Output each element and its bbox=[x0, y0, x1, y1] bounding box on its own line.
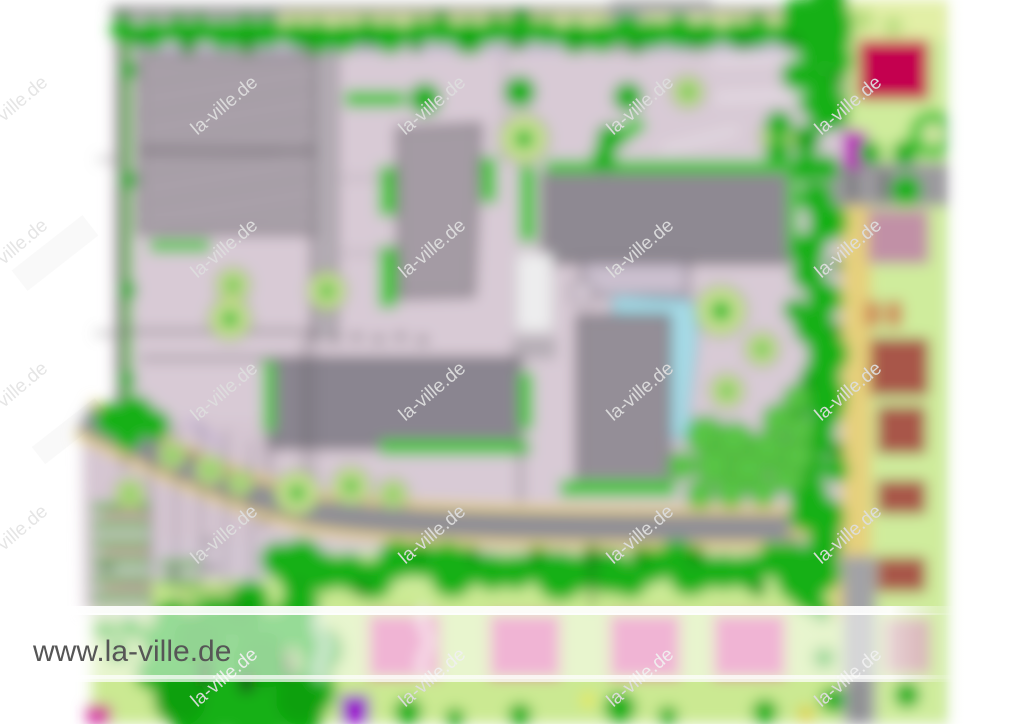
svg-text:www.la-ville.de: www.la-ville.de bbox=[32, 635, 231, 668]
svg-text:la-ville.de: la-ville.de bbox=[0, 72, 52, 140]
svg-text:la-ville.de: la-ville.de bbox=[0, 501, 52, 569]
svg-text:la-ville.de: la-ville.de bbox=[0, 358, 52, 426]
